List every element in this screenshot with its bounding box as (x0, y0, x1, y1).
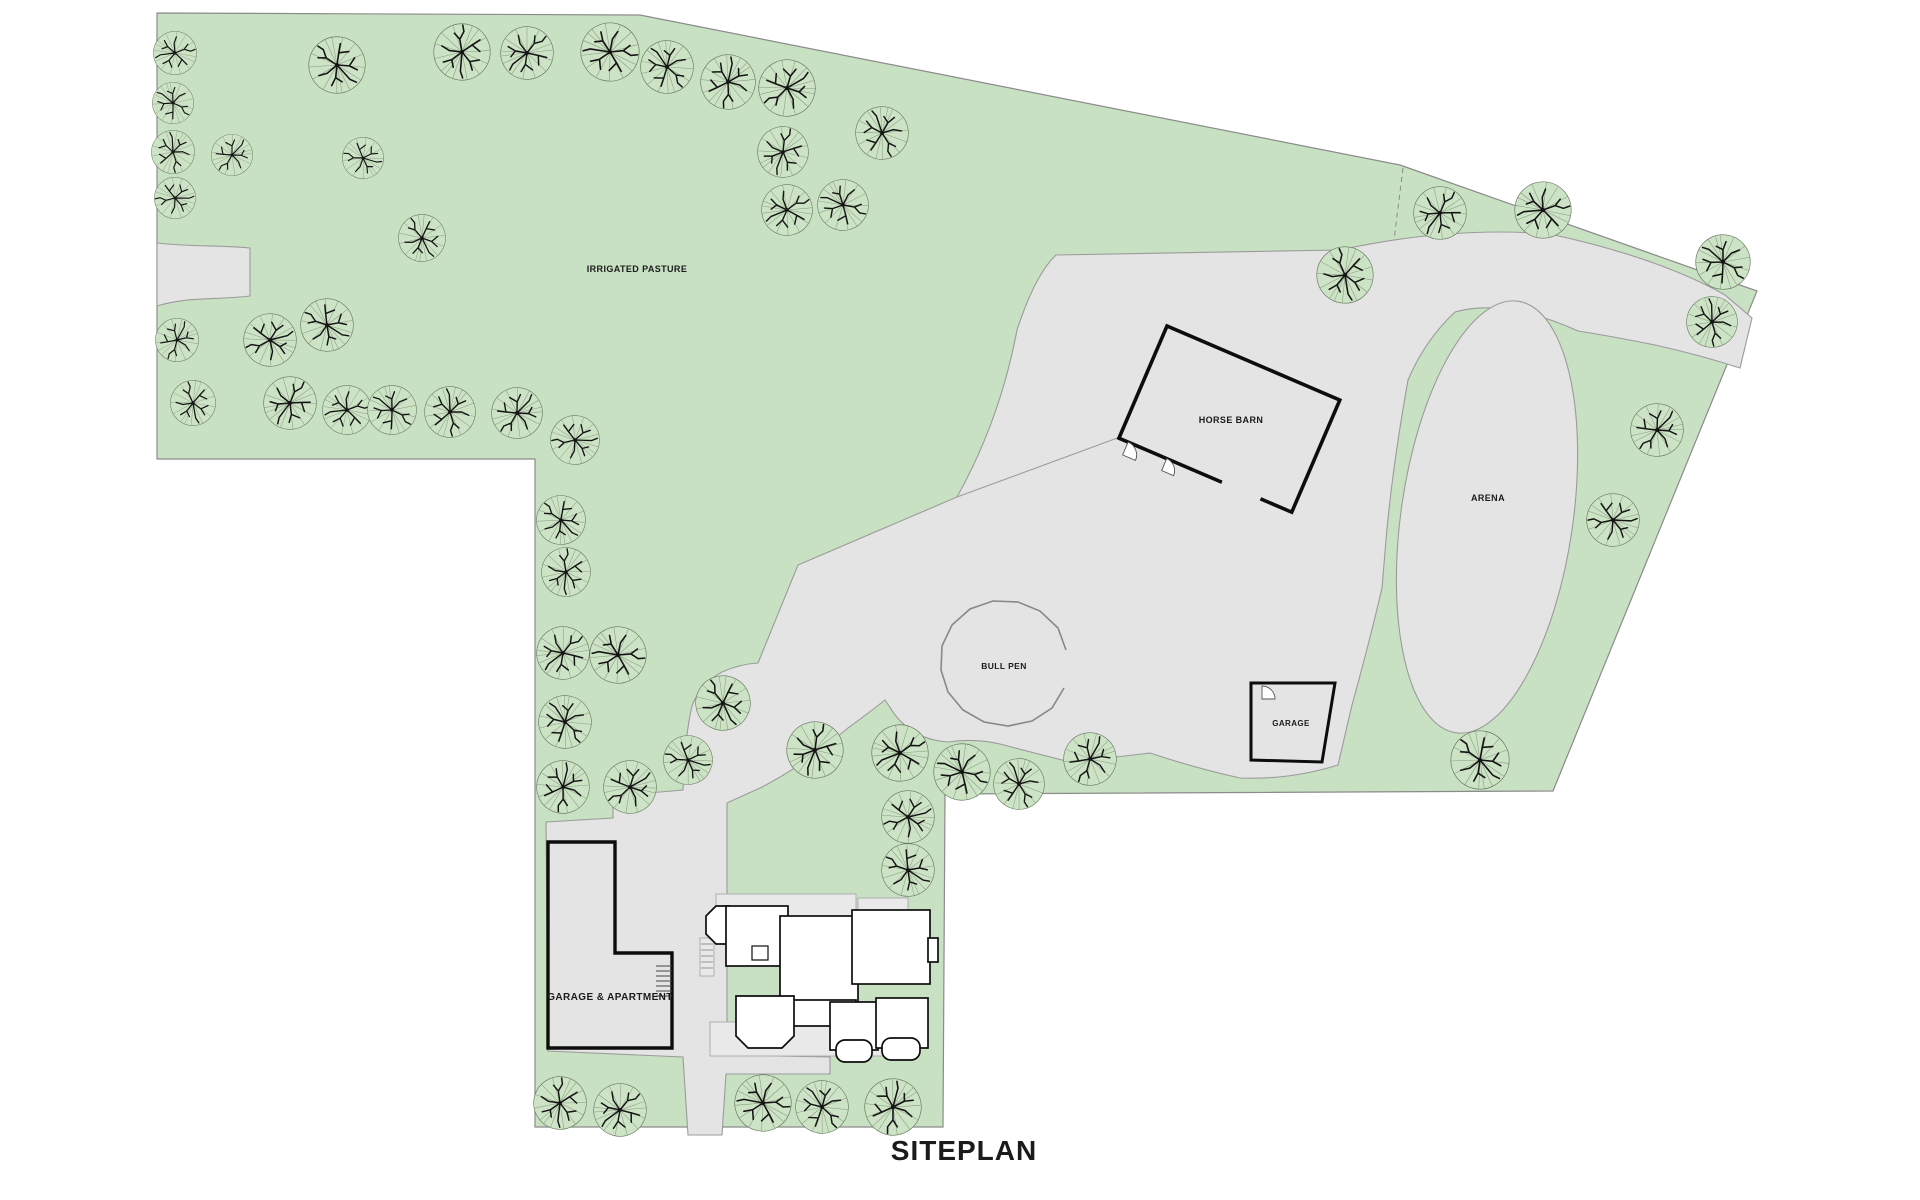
road-easement-notch (157, 243, 250, 306)
arena-label: ARENA (1471, 493, 1505, 503)
garage-apartment-label: GARAGE & APARTMENT (547, 992, 673, 1003)
tree-icon (322, 385, 372, 435)
page-title: SITEPLAN (891, 1135, 1037, 1166)
tree-icon (153, 31, 196, 74)
horse-barn-label: HORSE BARN (1199, 415, 1264, 425)
bull-pen-label: BULL PEN (981, 661, 1027, 671)
siteplan-page: IRRIGATED PASTURE HORSE BARN ARENA BULL … (0, 0, 1920, 1200)
siteplan-drawing: IRRIGATED PASTURE HORSE BARN ARENA BULL … (0, 0, 1920, 1200)
garage-label: GARAGE (1272, 719, 1310, 728)
pasture-label: IRRIGATED PASTURE (587, 264, 687, 274)
